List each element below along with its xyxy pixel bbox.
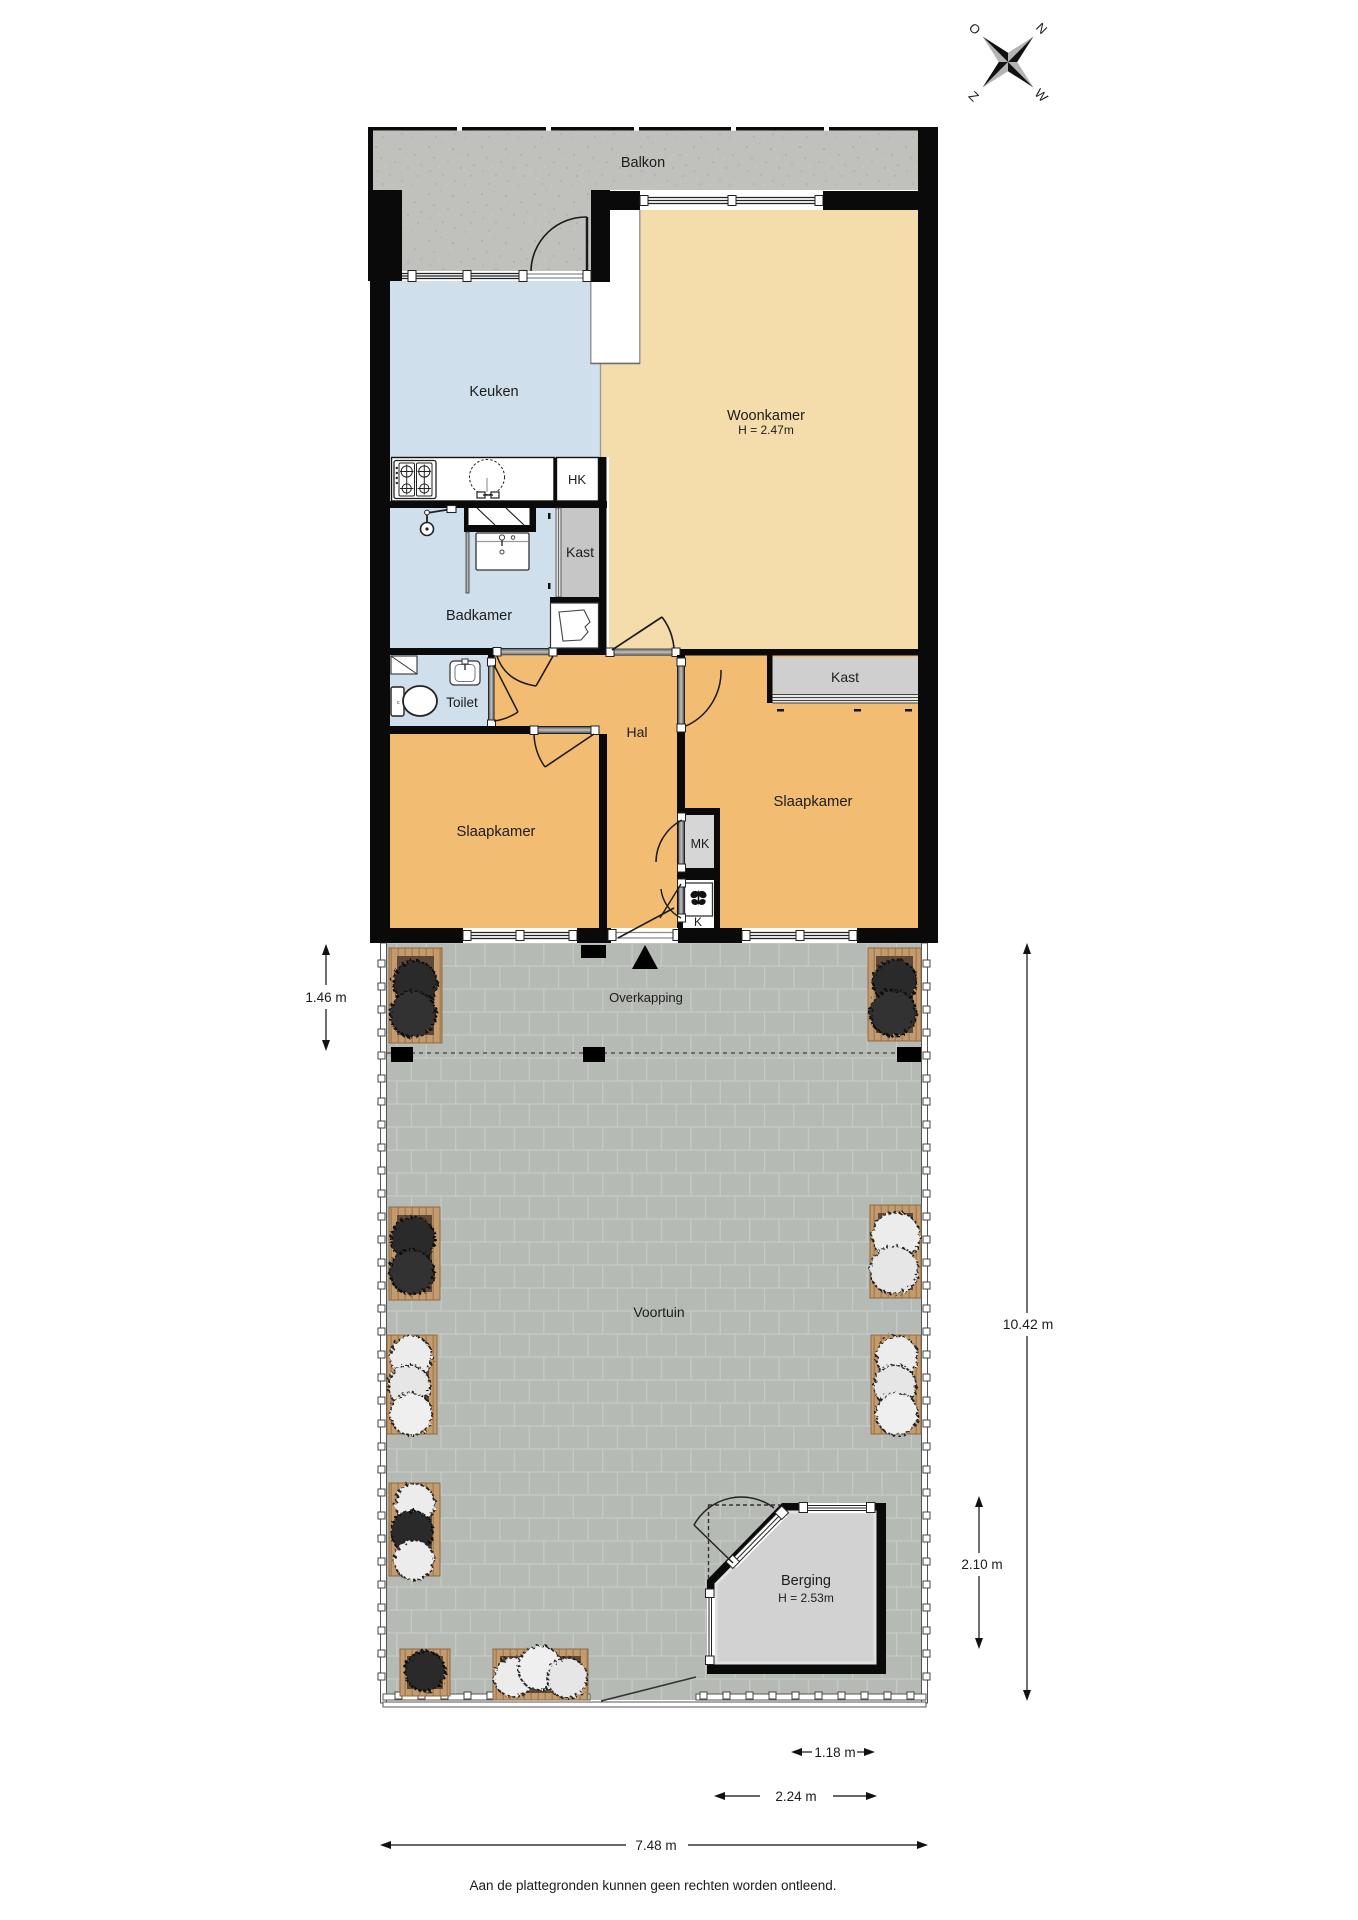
svg-text:Voortuin: Voortuin	[633, 1304, 684, 1320]
svg-text:Hal: Hal	[626, 724, 647, 740]
svg-text:Kast: Kast	[566, 544, 594, 560]
svg-text:1.46 m: 1.46 m	[305, 990, 346, 1005]
svg-text:Keuken: Keuken	[469, 384, 518, 400]
svg-text:Slaapkamer: Slaapkamer	[457, 824, 536, 840]
svg-text:Overkapping: Overkapping	[609, 990, 683, 1005]
svg-text:H = 2.47m: H = 2.47m	[738, 423, 794, 437]
svg-text:10.42 m: 10.42 m	[1003, 1316, 1054, 1332]
svg-text:MK: MK	[691, 837, 710, 851]
svg-text:Woonkamer: Woonkamer	[727, 408, 805, 424]
svg-text:Balkon: Balkon	[621, 155, 665, 171]
svg-text:1.18 m: 1.18 m	[814, 1745, 855, 1760]
svg-text:K: K	[694, 915, 702, 929]
svg-text:7.48 m: 7.48 m	[635, 1838, 676, 1853]
svg-text:Kast: Kast	[831, 669, 859, 685]
svg-text:H = 2.53m: H = 2.53m	[778, 1591, 834, 1605]
svg-text:Badkamer: Badkamer	[446, 608, 512, 624]
svg-text:2.10 m: 2.10 m	[961, 1557, 1002, 1572]
svg-text:Slaapkamer: Slaapkamer	[774, 794, 853, 810]
svg-text:Toilet: Toilet	[446, 695, 478, 710]
svg-text:Berging: Berging	[781, 1573, 831, 1589]
svg-text:Aan de plattegronden kunnen ge: Aan de plattegronden kunnen geen rechten…	[469, 1878, 836, 1893]
svg-text:HK: HK	[568, 472, 586, 487]
svg-text:2.24 m: 2.24 m	[775, 1789, 816, 1804]
